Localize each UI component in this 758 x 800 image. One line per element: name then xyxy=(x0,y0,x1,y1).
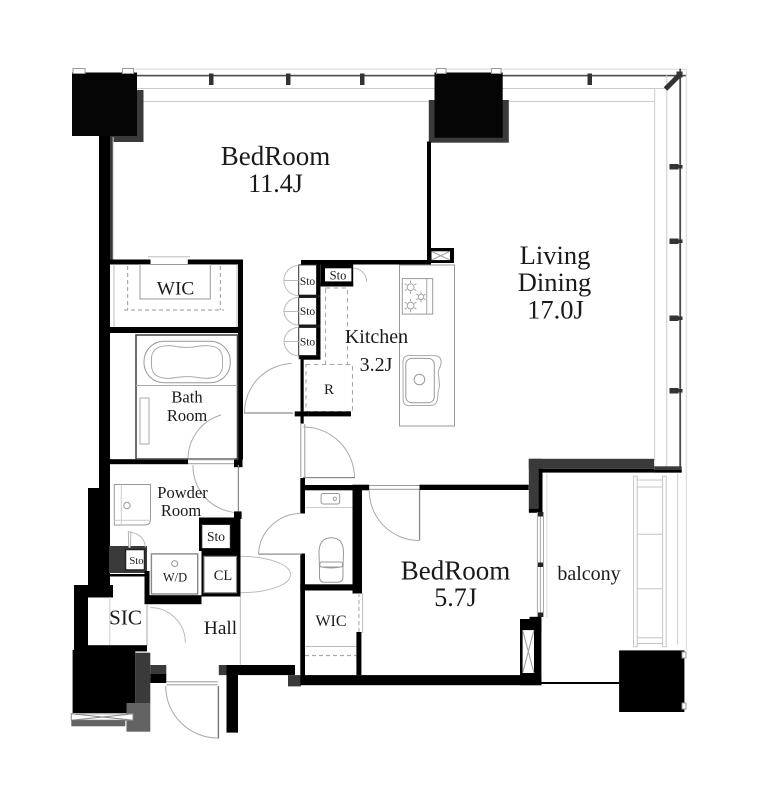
svg-text:Powder: Powder xyxy=(157,483,208,502)
svg-text:Sto: Sto xyxy=(207,529,225,544)
svg-text:BedRoom: BedRoom xyxy=(401,556,511,586)
svg-text:Room: Room xyxy=(161,501,202,520)
svg-text:Sto: Sto xyxy=(129,555,143,567)
svg-text:R: R xyxy=(324,382,334,398)
svg-text:balcony: balcony xyxy=(557,563,620,585)
svg-text:3.2J: 3.2J xyxy=(360,354,393,376)
svg-text:11.4J: 11.4J xyxy=(248,169,303,198)
svg-text:Hall: Hall xyxy=(204,618,237,639)
svg-text:Sto: Sto xyxy=(330,269,347,283)
svg-text:Sto: Sto xyxy=(300,337,316,349)
svg-text:WIC: WIC xyxy=(315,613,346,630)
svg-text:Kitchen: Kitchen xyxy=(345,326,408,348)
svg-text:Room: Room xyxy=(167,406,208,425)
svg-text:W/D: W/D xyxy=(163,571,187,585)
svg-text:Living: Living xyxy=(520,240,591,270)
svg-text:SIC: SIC xyxy=(109,606,142,630)
svg-text:5.7J: 5.7J xyxy=(434,583,477,612)
svg-text:CL: CL xyxy=(214,568,232,584)
svg-text:BedRoom: BedRoom xyxy=(221,141,331,171)
svg-text:WIC: WIC xyxy=(157,279,194,300)
svg-text:Sto: Sto xyxy=(300,276,316,288)
svg-text:Bath: Bath xyxy=(171,388,203,407)
svg-text:Sto: Sto xyxy=(300,306,316,318)
svg-text:Dining: Dining xyxy=(518,267,592,297)
svg-text:17.0J: 17.0J xyxy=(527,295,584,325)
